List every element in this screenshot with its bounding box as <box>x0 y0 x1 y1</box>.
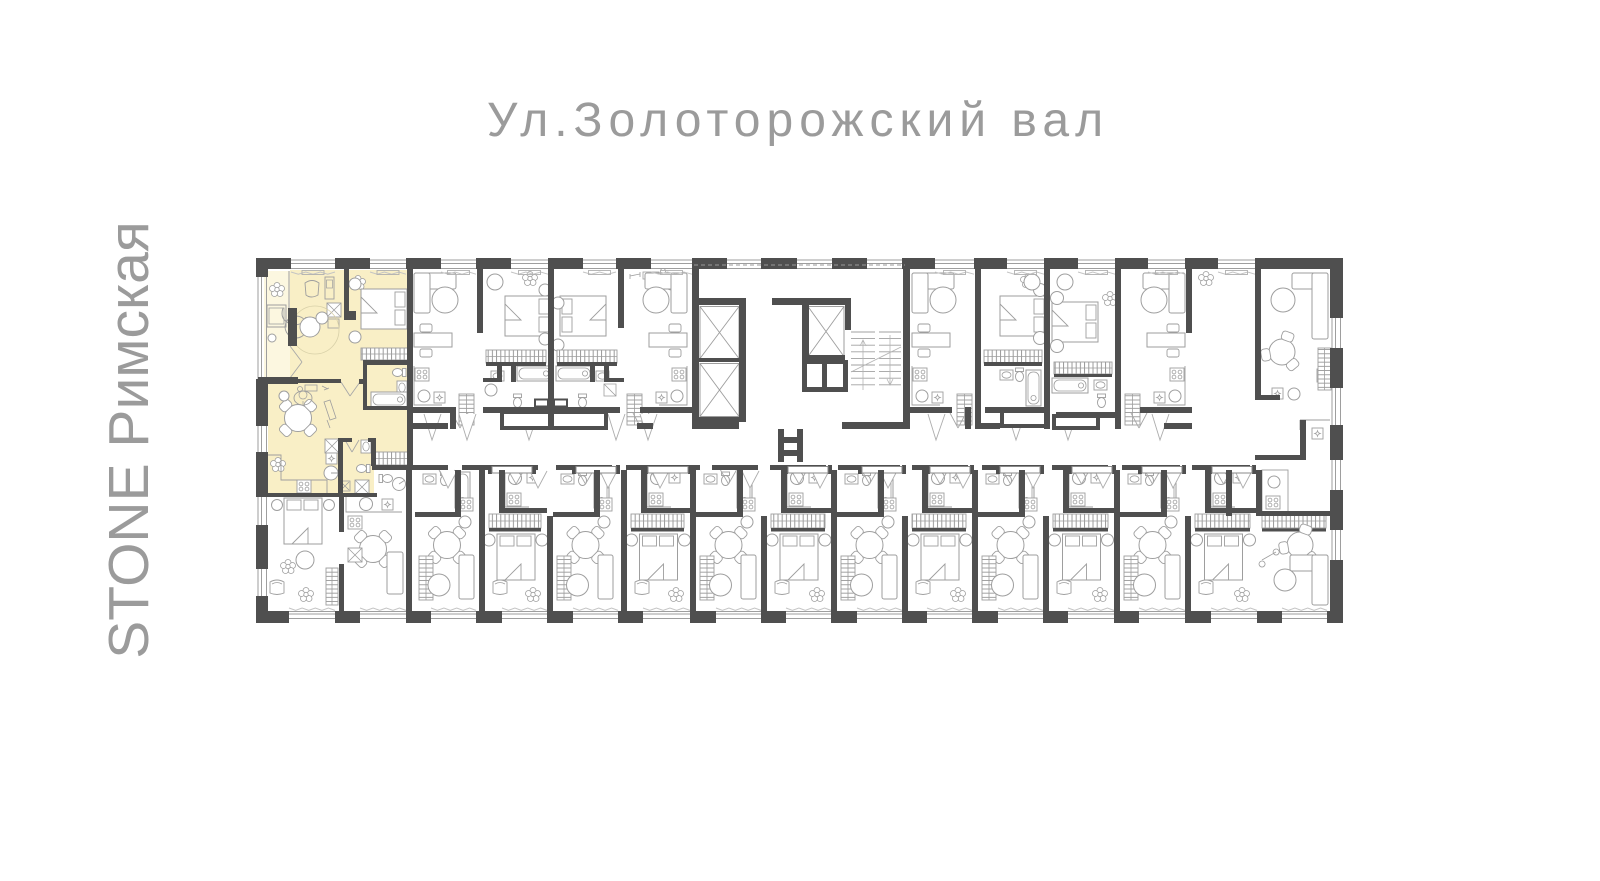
svg-text:STONE Римская: STONE Римская <box>97 221 161 658</box>
svg-text:Ул.Золоторожский вал: Ул.Золоторожский вал <box>487 94 1109 147</box>
